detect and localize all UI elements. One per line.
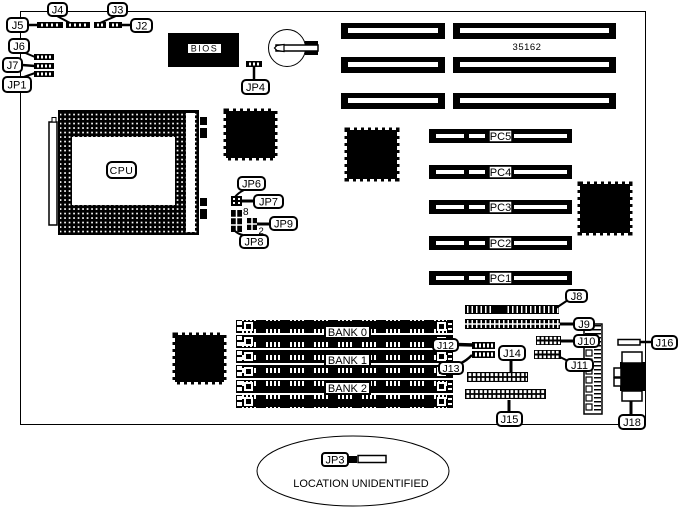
svg-text:PC2: PC2 — [490, 238, 511, 250]
svg-text:J7: J7 — [7, 60, 19, 72]
svg-text:JP8: JP8 — [245, 237, 264, 249]
svg-text:35162: 35162 — [513, 42, 542, 53]
svg-text:JP4: JP4 — [246, 82, 265, 94]
svg-text:J2: J2 — [136, 21, 148, 33]
svg-text:J18: J18 — [623, 417, 641, 429]
svg-text:JP3: JP3 — [326, 455, 345, 467]
svg-text:PC4: PC4 — [490, 167, 511, 179]
svg-text:JP6: JP6 — [242, 179, 261, 191]
svg-text:BANK 1: BANK 1 — [328, 355, 367, 367]
svg-text:J11: J11 — [571, 360, 588, 372]
svg-text:BIOS: BIOS — [191, 44, 219, 54]
svg-text:PC1: PC1 — [490, 273, 511, 285]
svg-text:J13: J13 — [443, 363, 460, 375]
svg-text:JP9: JP9 — [274, 219, 293, 231]
svg-text:J10: J10 — [578, 336, 596, 348]
svg-text:JP7: JP7 — [259, 197, 278, 209]
svg-text:CPU: CPU — [110, 165, 134, 177]
svg-text:J16: J16 — [656, 338, 674, 350]
svg-text:J14: J14 — [503, 348, 521, 360]
svg-text:J3: J3 — [112, 5, 124, 17]
svg-text:J4: J4 — [52, 5, 64, 17]
svg-text:J15: J15 — [501, 414, 519, 426]
svg-text:J5: J5 — [12, 20, 24, 32]
svg-text:PC5: PC5 — [490, 131, 511, 143]
svg-text:J12: J12 — [437, 340, 454, 352]
svg-text:BANK 2: BANK 2 — [328, 383, 367, 395]
svg-text:BANK 0: BANK 0 — [328, 327, 367, 339]
svg-text:LOCATION UNIDENTIFIED: LOCATION UNIDENTIFIED — [293, 478, 429, 490]
svg-text:J9: J9 — [578, 319, 590, 331]
svg-text:JP1: JP1 — [8, 80, 27, 92]
svg-text:J8: J8 — [571, 291, 583, 303]
svg-text:J6: J6 — [13, 41, 25, 53]
svg-text:PC3: PC3 — [490, 202, 511, 214]
svg-text:8: 8 — [243, 207, 249, 218]
